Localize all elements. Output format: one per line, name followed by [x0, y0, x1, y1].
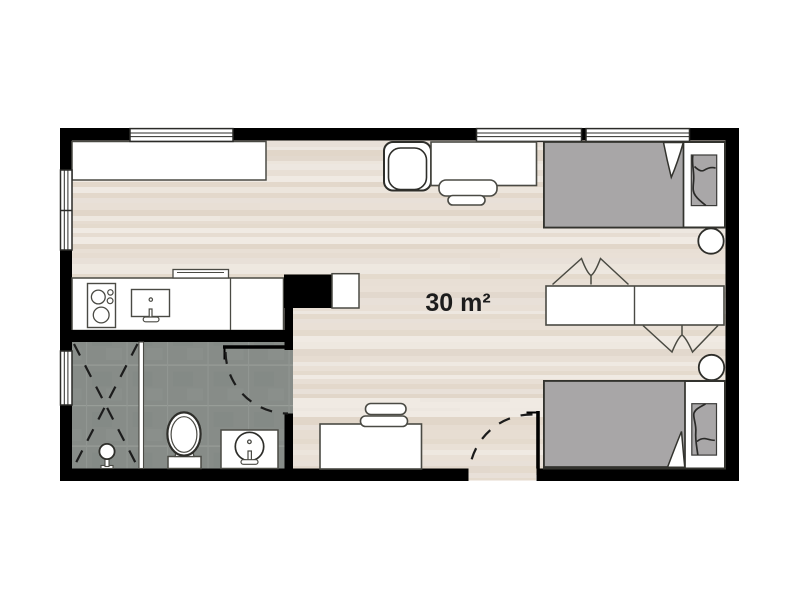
svg-text:30 m²: 30 m²	[425, 289, 490, 317]
